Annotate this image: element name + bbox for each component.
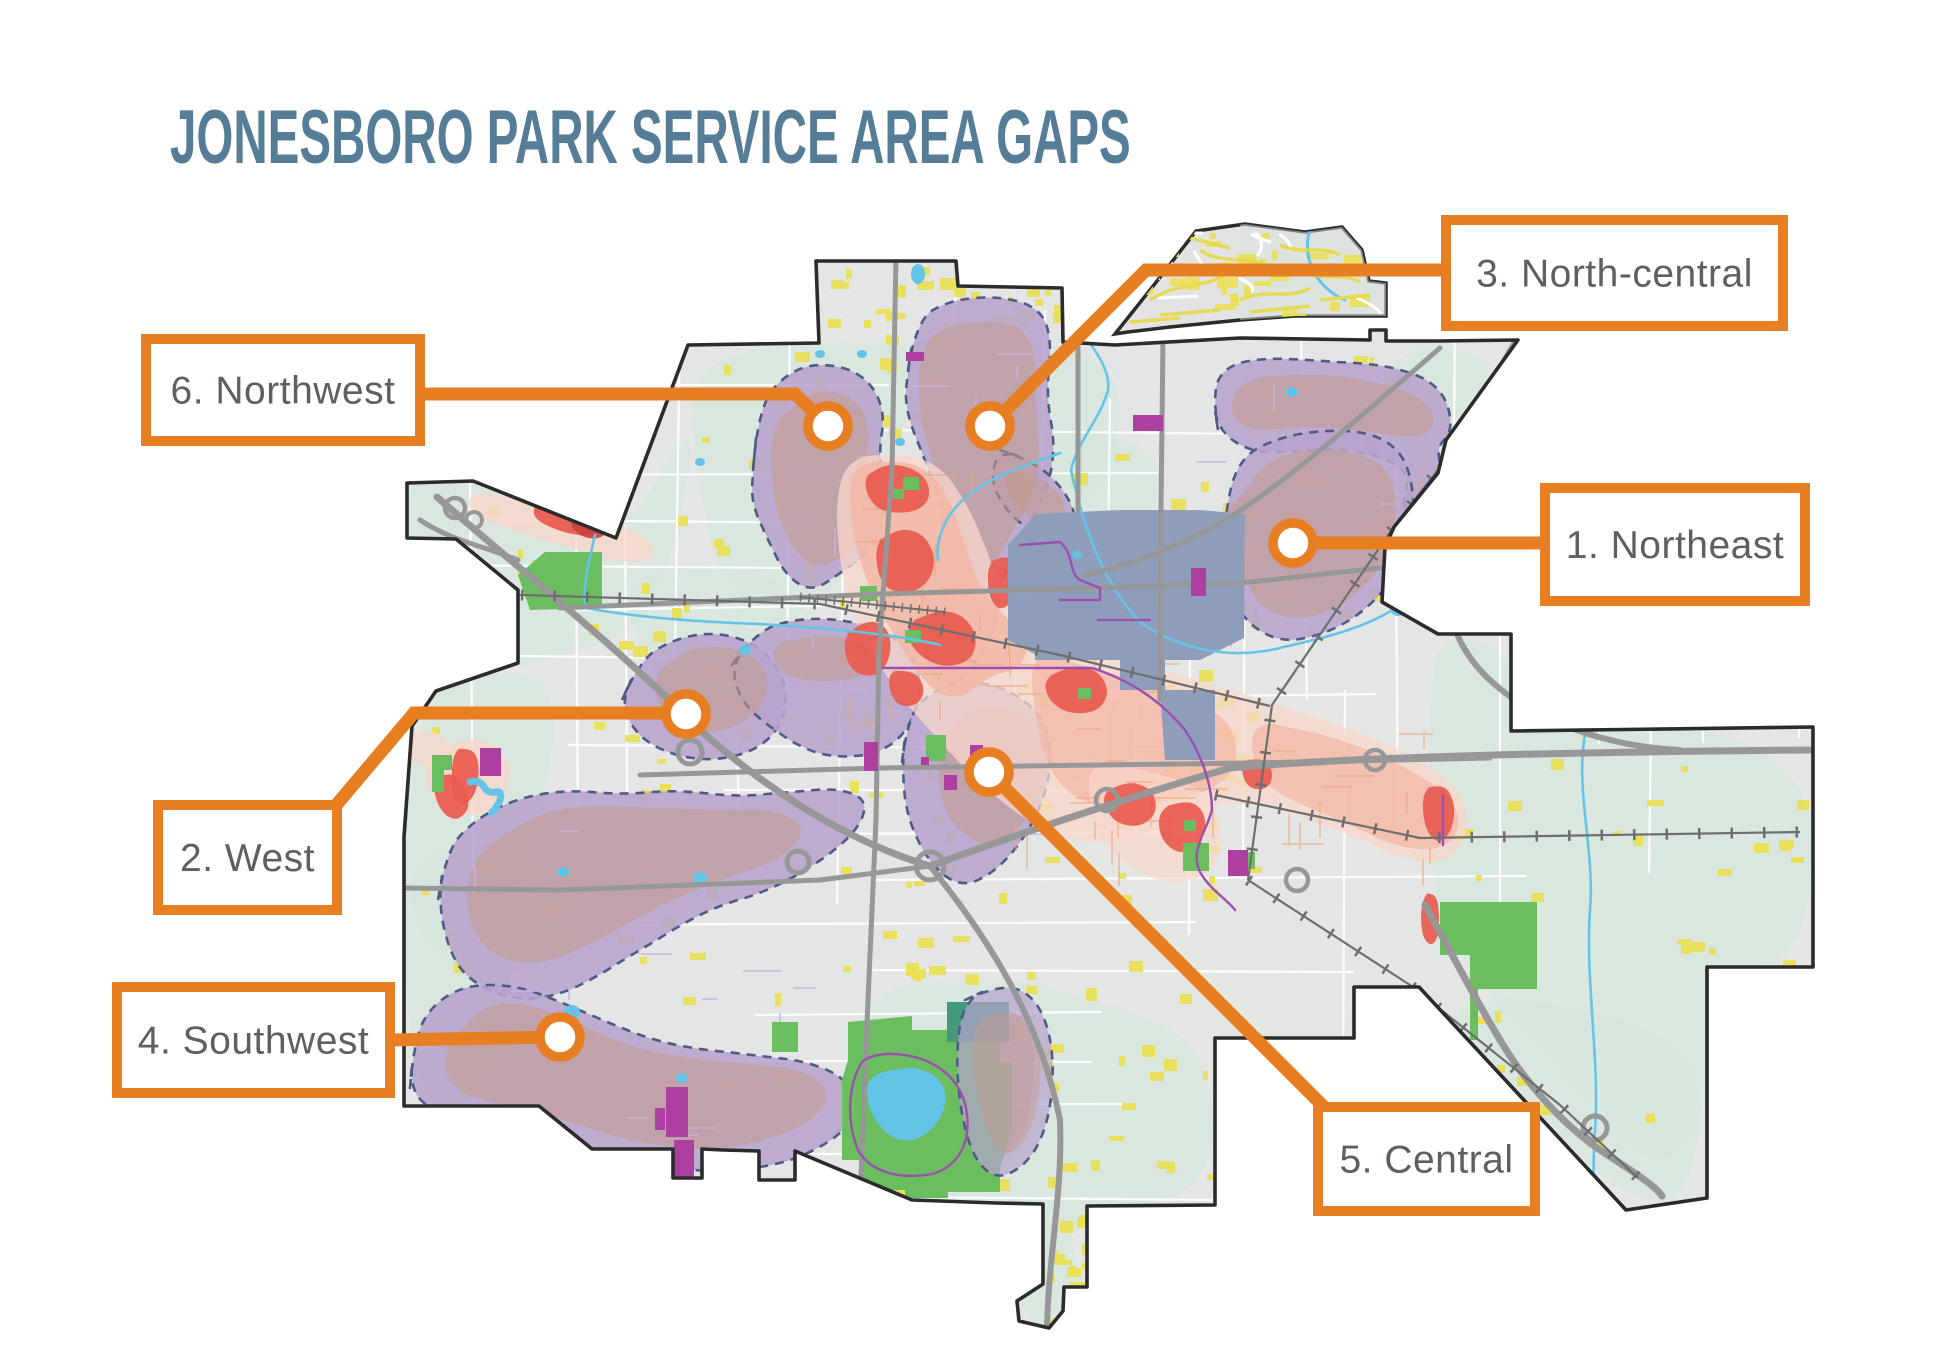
svg-text:4. Southwest: 4. Southwest: [138, 1020, 369, 1063]
svg-text:1. Northeast: 1. Northeast: [1566, 524, 1784, 567]
svg-text:3. North-central: 3. North-central: [1476, 253, 1753, 296]
svg-text:6. Northwest: 6. Northwest: [171, 370, 396, 413]
svg-text:5. Central: 5. Central: [1339, 1139, 1513, 1182]
svg-text:2. West: 2. West: [180, 837, 315, 880]
